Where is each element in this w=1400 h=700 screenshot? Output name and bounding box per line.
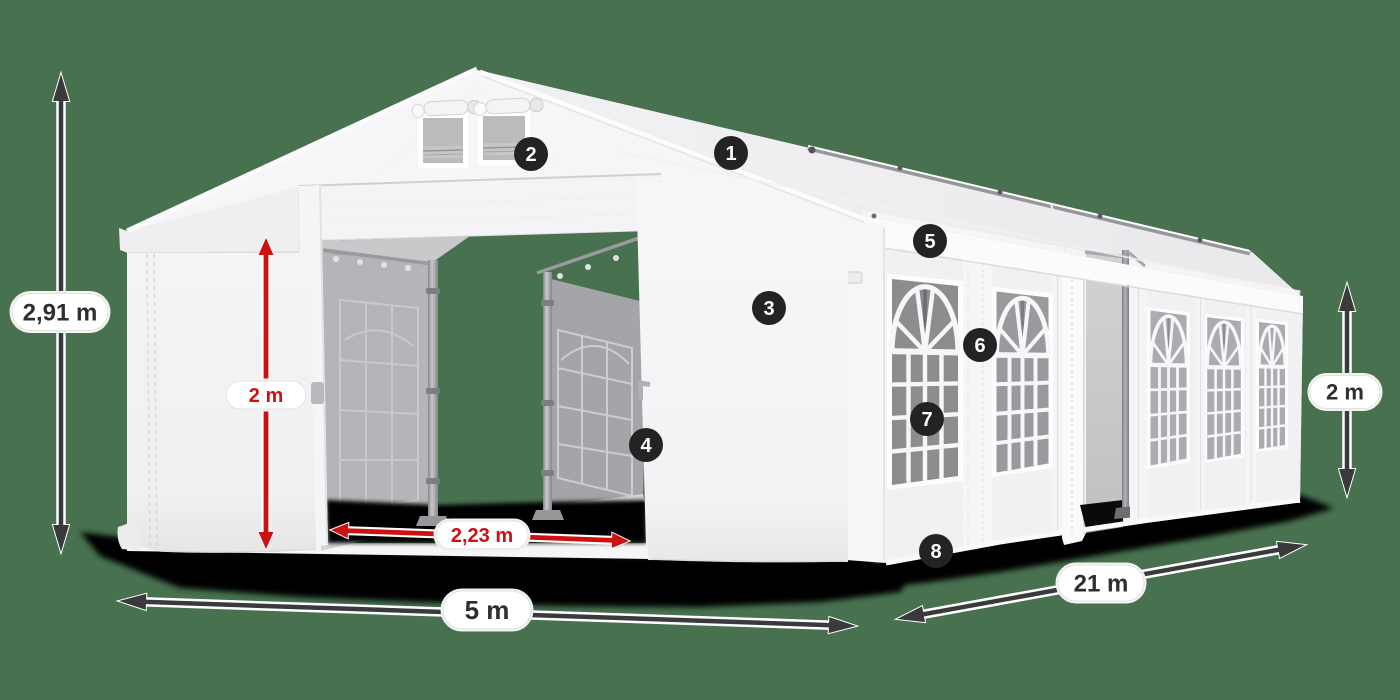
- svg-text:8: 8: [930, 541, 941, 563]
- svg-text:7: 7: [921, 409, 932, 431]
- svg-text:2: 2: [525, 144, 536, 166]
- svg-text:2,91 m: 2,91 m: [23, 299, 98, 326]
- svg-text:1: 1: [725, 143, 736, 165]
- svg-text:4: 4: [640, 435, 652, 457]
- svg-text:2,23 m: 2,23 m: [451, 525, 513, 547]
- svg-text:21 m: 21 m: [1074, 570, 1129, 597]
- svg-text:3: 3: [763, 298, 774, 320]
- svg-text:5: 5: [924, 231, 935, 253]
- svg-text:2 m: 2 m: [1326, 380, 1364, 405]
- svg-text:2 m: 2 m: [249, 385, 283, 407]
- svg-text:6: 6: [974, 335, 985, 357]
- svg-text:5 m: 5 m: [465, 595, 510, 625]
